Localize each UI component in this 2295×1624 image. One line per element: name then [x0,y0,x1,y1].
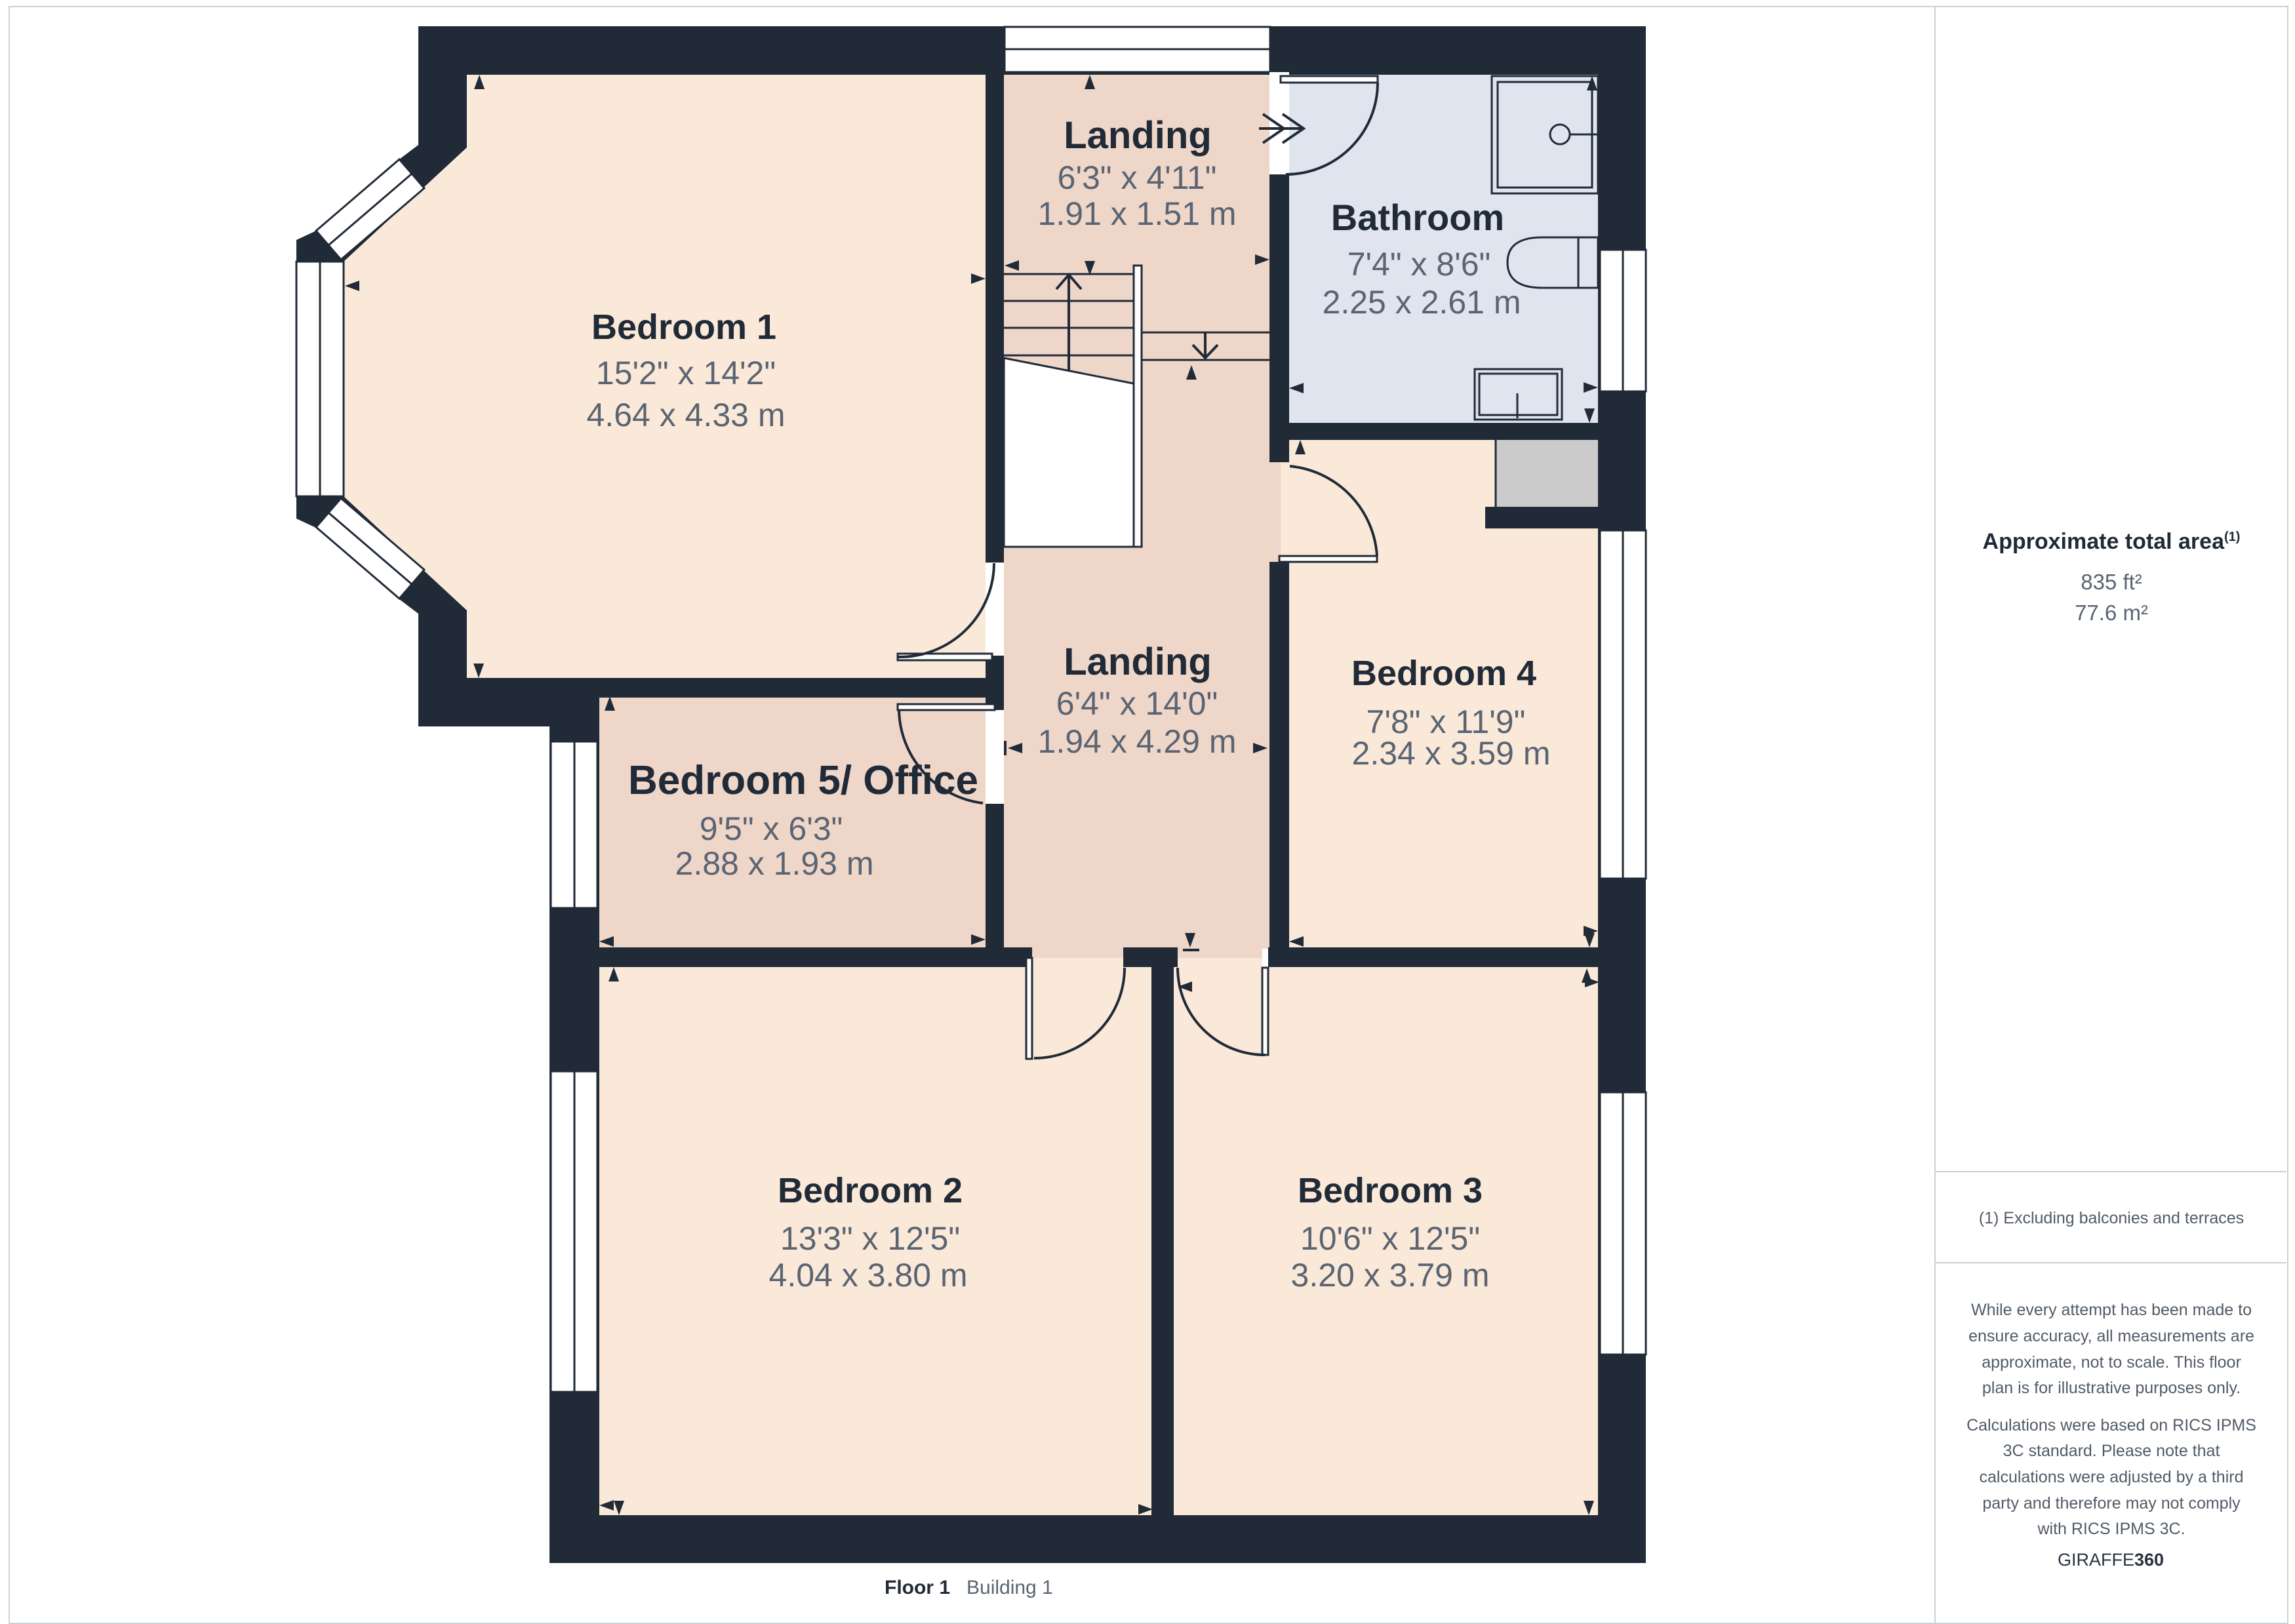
svg-text:Floor 1: Floor 1 [885,1577,950,1598]
svg-text:2.34 x 3.59 m: 2.34 x 3.59 m [1352,735,1551,772]
svg-text:6'3" x 4'11": 6'3" x 4'11" [1058,159,1217,196]
svg-text:13'3" x 12'5": 13'3" x 12'5" [780,1220,960,1257]
svg-text:Bedroom 2: Bedroom 2 [778,1171,963,1210]
svg-text:3C standard. Please note that: 3C standard. Please note that [2003,1442,2220,1460]
svg-text:Approximate total area(1): Approximate total area(1) [1983,529,2241,554]
svg-text:1.91 x 1.51 m: 1.91 x 1.51 m [1038,195,1237,232]
svg-text:ensure accuracy, all measureme: ensure accuracy, all measurements are [1968,1327,2254,1345]
svg-text:1.94 x 4.29 m: 1.94 x 4.29 m [1038,723,1237,760]
svg-text:835 ft²: 835 ft² [2081,570,2142,594]
svg-text:4.64 x 4.33 m: 4.64 x 4.33 m [587,397,786,433]
svg-text:(1) Excluding balconies and te: (1) Excluding balconies and terraces [1979,1209,2244,1227]
svg-text:4.04 x 3.80 m: 4.04 x 3.80 m [769,1257,968,1294]
svg-text:GIRAFFE360: GIRAFFE360 [2058,1550,2164,1570]
svg-text:2.88 x 1.93 m: 2.88 x 1.93 m [675,845,874,882]
svg-text:Bathroom: Bathroom [1331,197,1504,238]
svg-text:Bedroom 3: Bedroom 3 [1298,1171,1483,1210]
svg-text:10'6" x 12'5": 10'6" x 12'5" [1300,1220,1480,1257]
svg-text:Calculations were based on RIC: Calculations were based on RICS IPMS [1966,1416,2256,1435]
svg-text:party and therefore may not co: party and therefore may not comply [1982,1494,2241,1513]
svg-text:Bedroom 4: Bedroom 4 [1351,654,1536,693]
svg-text:Building 1: Building 1 [967,1577,1053,1598]
svg-text:plan is for illustrative purpo: plan is for illustrative purposes only. [1982,1379,2241,1397]
svg-text:6'4" x 14'0": 6'4" x 14'0" [1056,685,1218,722]
svg-text:While every attempt has been m: While every attempt has been made to [1971,1301,2252,1319]
svg-text:Bedroom 5/ Office: Bedroom 5/ Office [628,758,978,803]
svg-text:77.6 m²: 77.6 m² [2075,601,2148,625]
svg-text:15'2" x 14'2": 15'2" x 14'2" [596,355,776,391]
svg-text:3.20 x 3.79 m: 3.20 x 3.79 m [1291,1257,1490,1294]
svg-text:9'5" x 6'3": 9'5" x 6'3" [700,810,843,847]
svg-text:with RICS IPMS 3C.: with RICS IPMS 3C. [2037,1520,2185,1538]
svg-text:Bedroom 1: Bedroom 1 [591,307,776,347]
svg-text:Landing: Landing [1064,114,1212,157]
svg-text:Landing: Landing [1064,641,1212,683]
svg-text:approximate, not to scale. Thi: approximate, not to scale. This floor [1982,1353,2241,1372]
svg-text:calculations were adjusted by: calculations were adjusted by a third [1979,1468,2243,1486]
svg-text:2.25 x 2.61 m: 2.25 x 2.61 m [1323,284,1521,321]
svg-text:7'4" x 8'6": 7'4" x 8'6" [1347,246,1491,283]
